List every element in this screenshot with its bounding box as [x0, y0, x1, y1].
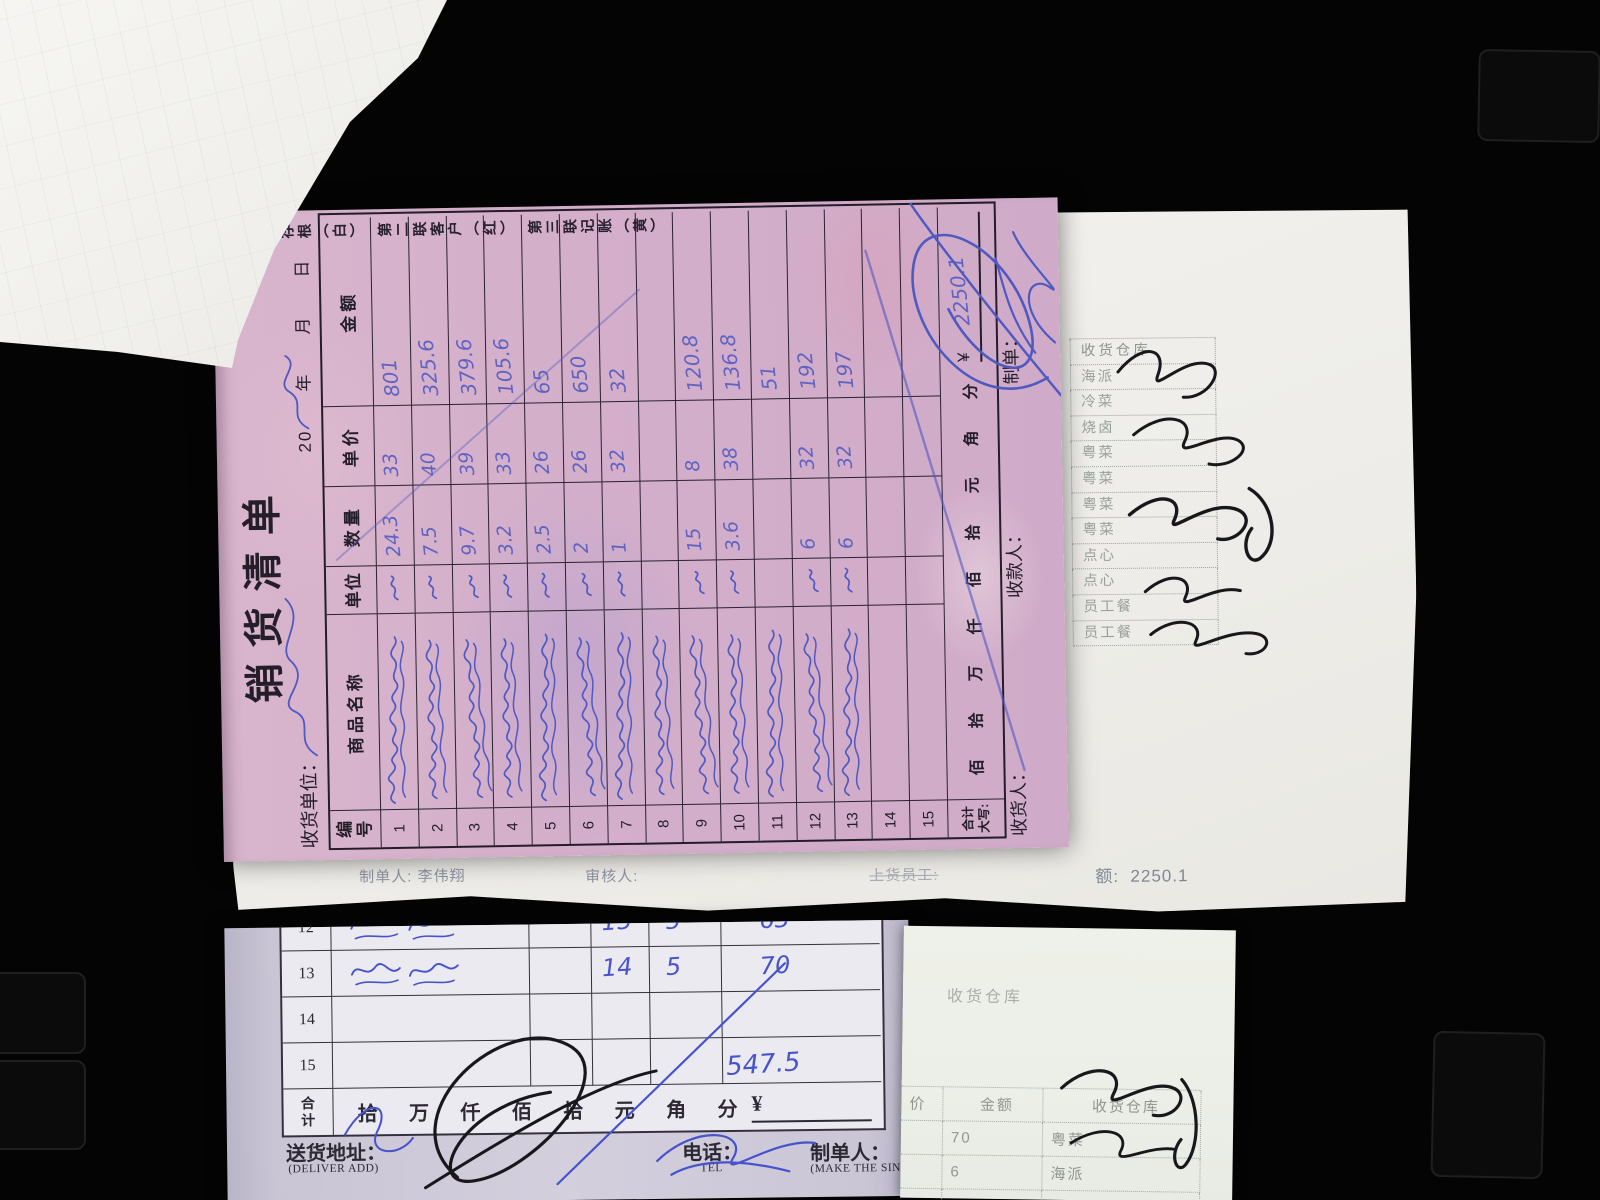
amount-cell — [722, 990, 881, 1038]
table-row: 13 14 5 70 — [282, 944, 883, 997]
background-key-shape — [1477, 49, 1600, 143]
amount-strip: 额: 2250.1 — [1095, 861, 1188, 887]
unit-cell — [868, 556, 907, 605]
qty-cell — [905, 475, 944, 556]
receiver-label: 收货单位： — [294, 753, 323, 848]
item-name-cell — [567, 609, 608, 806]
handwritten-unit-mark — [690, 567, 712, 598]
price-cell: 40 — [412, 404, 451, 485]
bottom-receipt: 12 15 5 63 13 — [224, 920, 911, 1200]
handwritten-item-scribble — [418, 626, 455, 803]
total-row: 合计 拾万仟佰拾元角分 ¥ — [283, 1082, 884, 1135]
slip-row: 6 海派 — [900, 1155, 1200, 1193]
bottom-receipt-table: 12 15 5 63 13 — [279, 920, 886, 1138]
pink-sales-receipt: 第一联存根（白） 第二联客户（红） 第三联记账（黄） 销货清单 收货单位： 20… — [213, 197, 1069, 862]
amount-cell: 136.8 — [711, 211, 752, 400]
currency-line: ¥ 2250.1 — [952, 212, 983, 362]
unit-cell — [490, 563, 529, 612]
price-cell: 32 — [601, 401, 640, 482]
amount-cell: 63 — [721, 920, 880, 946]
handwritten-item-scribble — [493, 625, 530, 802]
price-cell: 32 — [828, 397, 867, 478]
unit-cell — [452, 563, 491, 612]
price-cell: 5 — [649, 920, 722, 947]
qty-cell: 2.5 — [527, 482, 566, 563]
amount-cell: 120.8 — [673, 211, 714, 400]
item-name-cell — [642, 608, 683, 805]
unit-cell — [530, 948, 593, 995]
bottom-right-slip: 收货仓库 价 金额 收货仓库 70 粤菜 6 海派 40 海派 — [900, 926, 1236, 1200]
handwritten-unit-mark — [423, 572, 444, 602]
qty-cell: 15 — [591, 920, 650, 948]
amount-cell — [900, 207, 941, 396]
amount-cell: 192 — [786, 209, 827, 398]
unit-cell — [793, 557, 832, 606]
handwritten-unit-mark — [725, 567, 746, 597]
unit-cell — [528, 562, 567, 611]
total-row: 合计大写: 佰拾万仟佰拾元角分 ¥ 2250.1 — [938, 203, 1005, 837]
price-cell — [865, 396, 904, 477]
amount-cell: 325.6 — [409, 216, 450, 405]
table-row: 14 — [282, 990, 883, 1043]
amount-cell — [635, 212, 676, 401]
warehouse-signatures-ink — [1088, 328, 1331, 660]
price-cell: 26 — [563, 401, 602, 482]
background-key-shape — [0, 1060, 86, 1150]
item-name-cell — [529, 610, 570, 807]
qty-cell: 3.6 — [716, 479, 755, 560]
item-name-cell — [378, 613, 419, 810]
unit-cell — [830, 557, 869, 606]
handwritten-item-scribble — [833, 614, 872, 800]
currency-line: ¥ — [751, 1089, 871, 1122]
item-name-cell — [869, 604, 910, 801]
amount-cell: 65 — [522, 214, 563, 403]
price-cell — [903, 395, 942, 476]
item-name-cell — [831, 605, 872, 802]
price-cell: 33 — [487, 403, 526, 484]
warehouse-ghost-label: 收货仓库 — [947, 982, 1023, 1007]
handwritten-unit-mark — [838, 564, 859, 596]
handwritten-item-scribble — [720, 621, 757, 798]
amount-cell: 197 — [824, 209, 865, 398]
price-cell: 33 — [374, 405, 413, 486]
amount-cell: 379.6 — [446, 215, 487, 404]
handwritten-unit-mark — [498, 571, 519, 601]
slip-header-row: 价 金额 收货仓库 — [901, 1086, 1201, 1125]
qty-cell: 24.3 — [375, 485, 414, 566]
handwritten-item-scribble — [530, 619, 569, 805]
amount-cell: 650 — [560, 213, 601, 402]
qty-cell: 3.2 — [489, 483, 528, 564]
price-cell: 39 — [450, 403, 489, 484]
auditor-strip: 审核人: — [585, 865, 638, 887]
unit-cell — [604, 561, 643, 610]
qty-cell: 6 — [791, 477, 830, 558]
unit-cell — [717, 559, 756, 608]
background-key-shape — [0, 972, 86, 1054]
price-cell: 8 — [676, 399, 715, 480]
price-cell: 32 — [790, 397, 829, 478]
handwritten-item-scribble — [757, 616, 796, 802]
qty-cell: 6 — [829, 477, 868, 558]
unit-cell — [906, 555, 945, 604]
item-name-cell — [793, 605, 834, 802]
qty-cell — [593, 1039, 652, 1086]
price-cell — [752, 398, 791, 479]
item-name-cell — [718, 607, 759, 804]
handwritten-item-scribble — [606, 618, 645, 804]
unit-cell — [566, 561, 605, 610]
qty-cell — [640, 480, 679, 561]
maker-strip: 制单人: 李伟翔 — [359, 865, 466, 887]
background-key-shape — [1430, 1031, 1545, 1179]
item-name-cell — [907, 603, 948, 800]
date-line: 20 年 月 日 — [287, 258, 315, 452]
item-name-cell — [331, 920, 530, 951]
item-name-cell — [680, 607, 721, 804]
amount-cell: 105.6 — [484, 215, 525, 404]
qty-cell: 9.7 — [451, 483, 490, 564]
slip-table: 价 金额 收货仓库 70 粤菜 6 海派 40 海派 — [900, 1086, 1202, 1200]
unit-cell — [641, 560, 680, 609]
amount-cell: 32 — [598, 213, 639, 402]
item-name-cell — [756, 606, 797, 803]
unit-cell — [529, 920, 592, 949]
unit-cell — [377, 565, 416, 614]
unit-cell — [530, 994, 593, 1041]
handwritten-unit-mark — [803, 565, 825, 596]
handwritten-item-scribble — [344, 953, 494, 995]
unit-cell — [415, 564, 454, 613]
qty-cell: 15 — [678, 479, 717, 560]
price-cell: 5 — [650, 946, 723, 993]
price-cell: 26 — [525, 402, 564, 483]
price-cell — [651, 1038, 724, 1085]
item-name-cell — [491, 611, 532, 808]
amount-cell: 51 — [749, 210, 790, 399]
item-name-cell — [333, 1040, 532, 1088]
slip-row: 70 粤菜 — [901, 1121, 1201, 1159]
handwritten-total-547: 547.5 — [725, 1047, 801, 1082]
qty-cell: 7.5 — [413, 484, 452, 565]
unit-cell — [755, 558, 794, 607]
handwritten-item-scribble — [644, 622, 681, 799]
handwritten-item-scribble — [379, 622, 418, 808]
item-name-cell — [332, 948, 531, 996]
qty-cell: 1 — [602, 481, 641, 562]
handwritten-total: 2250.1 — [944, 255, 975, 327]
photo-of-receipts: { "colors":{"paper_pink":"#d6b2ca","ink_… — [0, 0, 1600, 1200]
qty-cell — [867, 476, 906, 557]
qty-cell — [592, 993, 651, 1040]
qty-cell — [753, 478, 792, 559]
item-name-cell — [332, 994, 531, 1042]
qty-cell: 2 — [564, 481, 603, 562]
receipt-title: 销货清单 — [229, 479, 291, 704]
item-name-cell — [453, 611, 494, 808]
amount-cell — [862, 208, 903, 397]
item-name-cell — [604, 609, 645, 806]
qty-cell: 14 — [592, 947, 651, 994]
item-name-cell — [415, 612, 456, 809]
handwritten-item-scribble — [343, 920, 493, 949]
handwritten-unit-mark — [576, 569, 598, 600]
unit-cell — [679, 559, 718, 608]
unit-cell — [531, 1040, 594, 1087]
price-cell: 38 — [714, 399, 753, 480]
items-table: 编号 商品名称 单位 数量 单价 金额 1 24.3 — [318, 201, 1007, 850]
amount-cell: 801 — [371, 217, 412, 406]
handwritten-unit-mark — [385, 572, 406, 604]
price-cell — [650, 992, 723, 1039]
handwritten-unit-mark — [612, 568, 633, 600]
loader-strip: 上货员工: — [869, 864, 938, 886]
handwritten-unit-mark — [463, 571, 485, 602]
amount-cell: 70 — [722, 944, 881, 992]
price-cell — [639, 400, 678, 481]
handwritten-unit-mark — [536, 569, 557, 601]
